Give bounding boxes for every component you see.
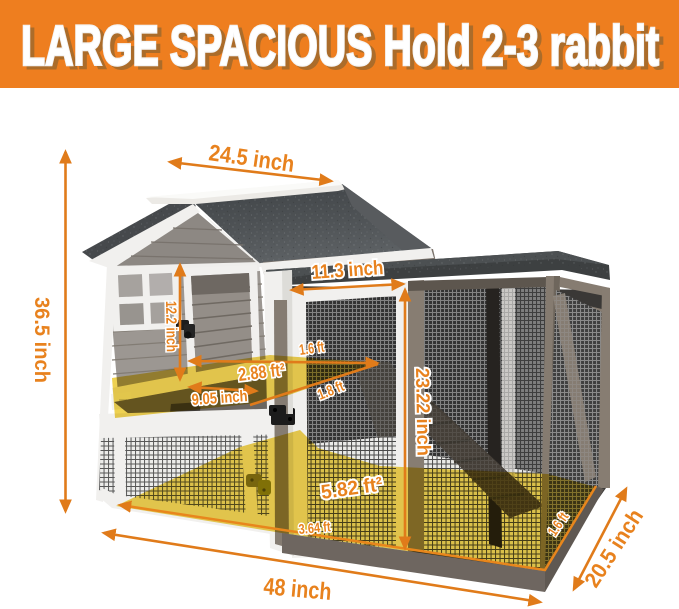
svg-text:3.64 ft: 3.64 ft bbox=[298, 518, 332, 537]
svg-text:36.5 inch: 36.5 inch bbox=[30, 297, 53, 383]
svg-text:23.22 inch: 23.22 inch bbox=[411, 368, 434, 456]
svg-text:1.6 ft: 1.6 ft bbox=[298, 339, 325, 359]
svg-text:LARGE SPACIOUS Hold 2-3 rabbit: LARGE SPACIOUS Hold 2-3 rabbit bbox=[21, 14, 659, 78]
svg-text:12.2 inch: 12.2 inch bbox=[162, 301, 180, 352]
